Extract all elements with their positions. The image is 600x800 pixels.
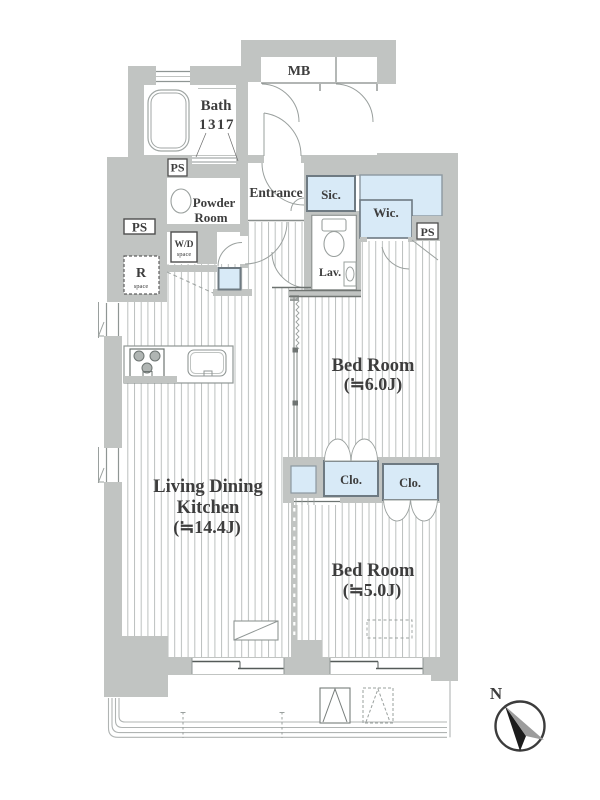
svg-text:Bed Room: Bed Room [332, 561, 415, 581]
svg-text:Wic.: Wic. [373, 205, 398, 220]
svg-text:1317: 1317 [199, 117, 235, 133]
svg-text:(≒5.0J): (≒5.0J) [343, 580, 402, 601]
svg-text:(≒14.4J): (≒14.4J) [173, 517, 241, 538]
svg-text:Room: Room [194, 210, 227, 225]
svg-text:Lav.: Lav. [319, 265, 341, 279]
svg-text:Bed Room: Bed Room [332, 356, 415, 376]
svg-text:Bath: Bath [201, 98, 233, 114]
svg-text:Entrance: Entrance [249, 185, 302, 200]
svg-text:space: space [134, 283, 149, 290]
svg-text:Clo.: Clo. [399, 476, 421, 490]
svg-text:N: N [490, 684, 503, 703]
svg-text:Living Dining: Living Dining [153, 477, 263, 497]
svg-text:Powder: Powder [193, 195, 236, 210]
svg-text:PS: PS [170, 161, 184, 175]
svg-text:Clo.: Clo. [340, 473, 362, 487]
svg-text:Sic.: Sic. [321, 187, 341, 202]
svg-text:R: R [136, 266, 147, 281]
svg-text:PS: PS [132, 220, 147, 235]
svg-text:space: space [177, 251, 192, 258]
svg-text:W/D: W/D [175, 240, 194, 250]
svg-text:(≒6.0J): (≒6.0J) [344, 374, 403, 395]
svg-text:Kitchen: Kitchen [177, 498, 240, 518]
svg-text:MB: MB [288, 64, 311, 79]
svg-text:PS: PS [420, 225, 434, 239]
